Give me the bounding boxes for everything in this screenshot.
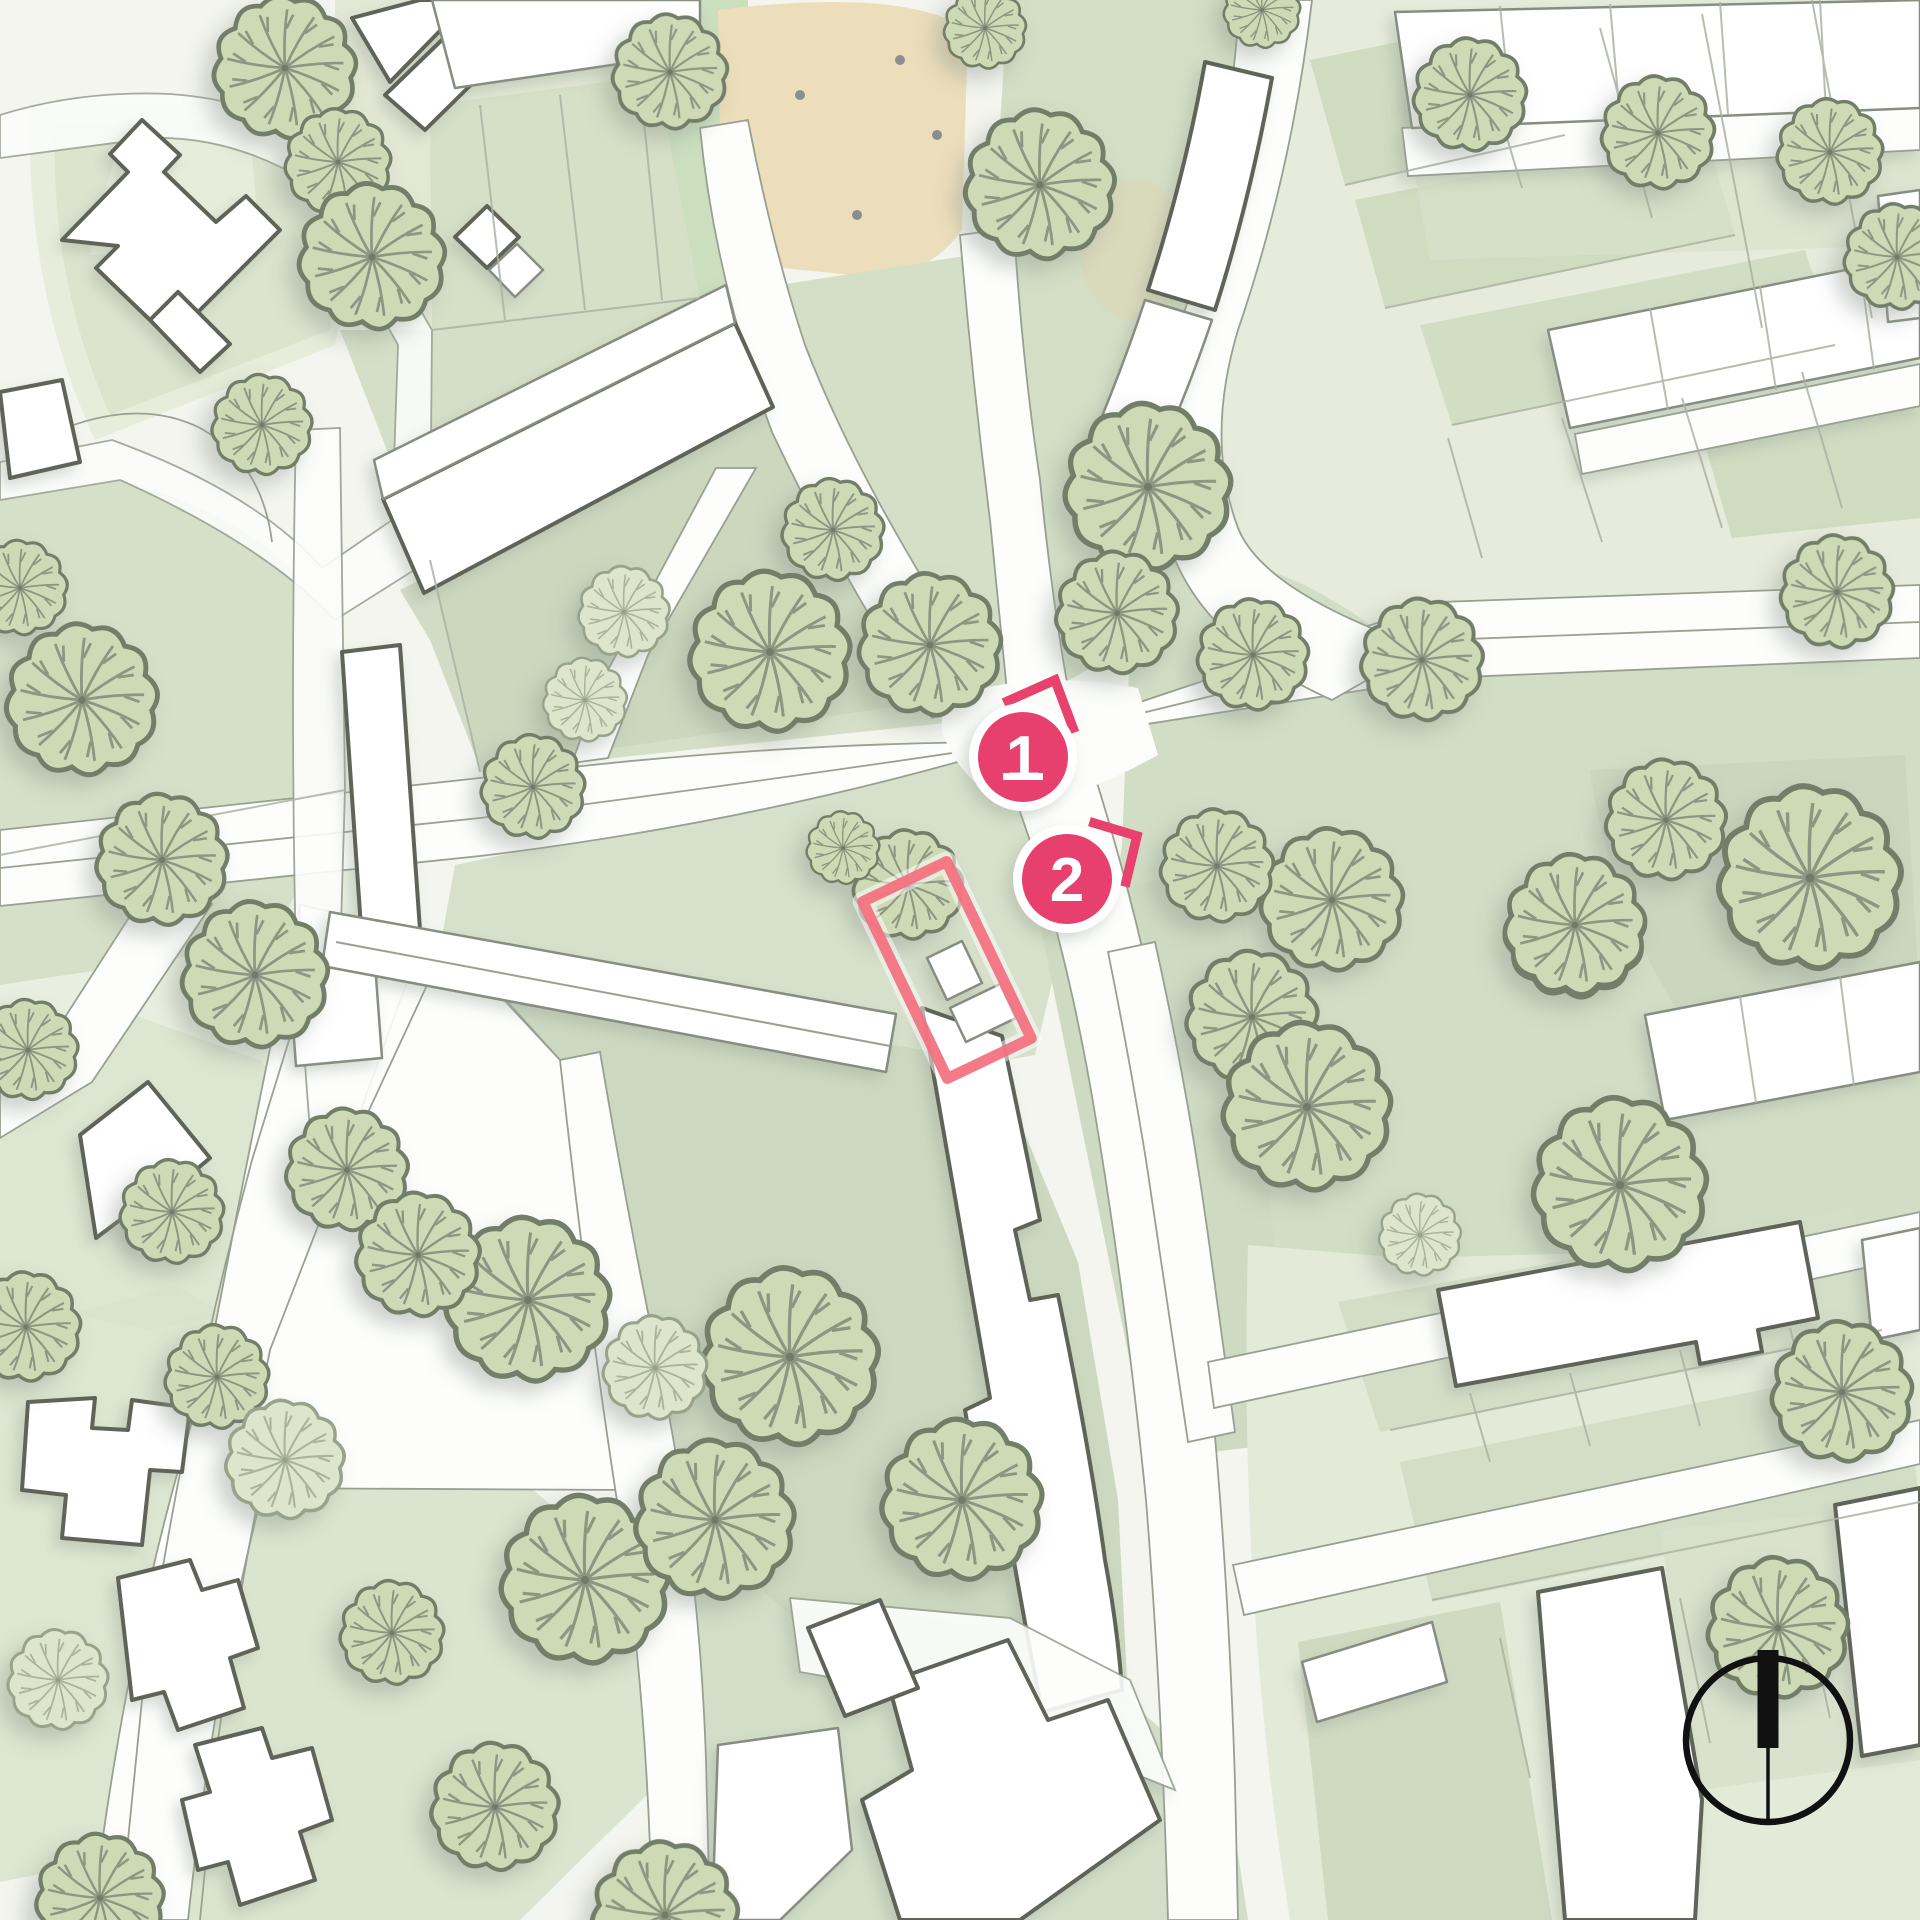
svg-text:1: 1 (1006, 724, 1040, 793)
svg-text:2: 2 (1050, 846, 1084, 915)
